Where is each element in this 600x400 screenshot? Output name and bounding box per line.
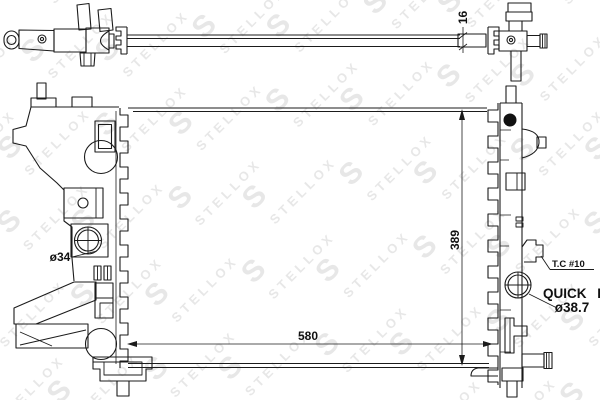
filler-cap (504, 114, 517, 127)
quick-fit-label: QUICK FIT (543, 286, 600, 301)
core-height-label: 389 (448, 230, 462, 250)
tube-height-label: 16 (456, 11, 470, 25)
core-width-label: 580 (298, 329, 318, 343)
drawing-canvas: STELLOX STELLOX STELLOX STELLOX STELLOX … (0, 0, 600, 400)
quick-fit-port (505, 272, 531, 298)
crossbar-bolt-right (507, 36, 515, 44)
tc-fitting-label: T.C #10 (552, 259, 585, 270)
quick-fit-diameter-label: ø38.7 (555, 300, 590, 315)
radiator-technical-drawing: STELLOX STELLOX STELLOX STELLOX STELLOX … (0, 0, 600, 400)
inlet-diameter-label: ø34 (50, 250, 71, 264)
